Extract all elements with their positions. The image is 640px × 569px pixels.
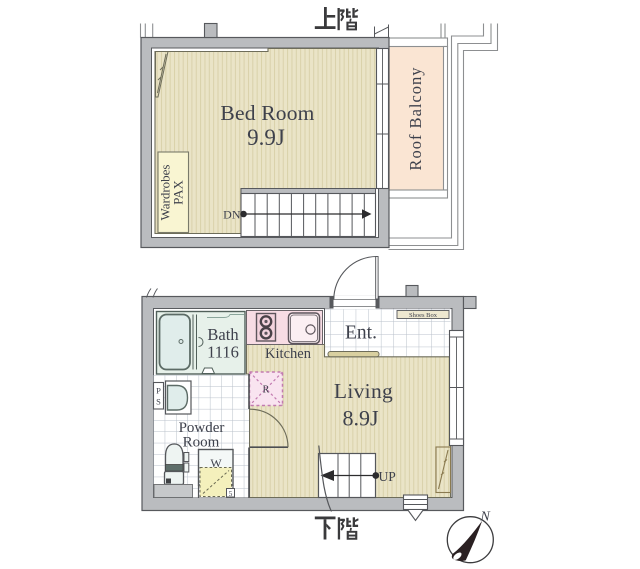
- svg-text:Roof Balcony: Roof Balcony: [406, 66, 425, 170]
- svg-text:Kitchen: Kitchen: [265, 346, 312, 362]
- svg-text:UP: UP: [379, 469, 396, 484]
- svg-text:8.9J: 8.9J: [342, 406, 379, 431]
- svg-text:Room: Room: [183, 435, 220, 451]
- svg-text:N: N: [480, 510, 491, 525]
- svg-text:DN: DN: [223, 208, 241, 222]
- svg-text:1116: 1116: [207, 343, 239, 362]
- svg-text:S: S: [156, 397, 161, 407]
- svg-text:9.9J: 9.9J: [247, 125, 285, 150]
- svg-text:PAX: PAX: [171, 179, 186, 204]
- svg-text:Shoes Box: Shoes Box: [409, 312, 438, 319]
- svg-text:R: R: [263, 385, 270, 396]
- svg-text:Bed Room: Bed Room: [220, 101, 314, 125]
- svg-text:P: P: [156, 386, 161, 396]
- svg-text:5: 5: [229, 489, 233, 498]
- svg-text:Living: Living: [334, 379, 393, 403]
- svg-text:W: W: [210, 456, 222, 470]
- svg-text:Ent.: Ent.: [345, 323, 377, 344]
- svg-text:Bath: Bath: [207, 325, 239, 344]
